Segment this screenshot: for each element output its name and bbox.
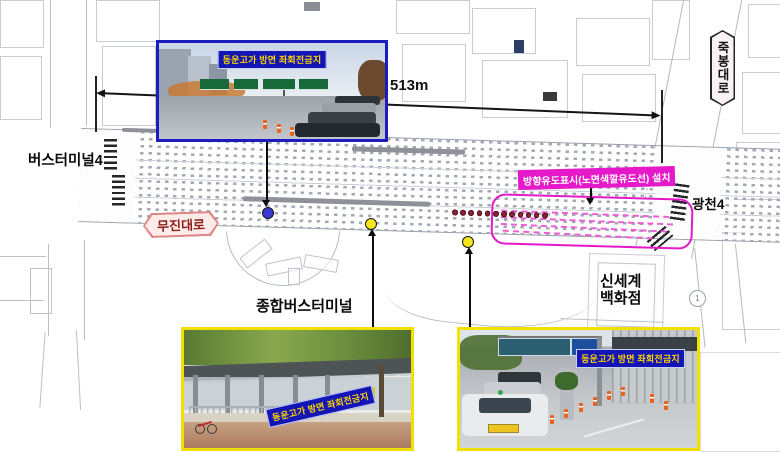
map-detail (543, 92, 557, 101)
map-detail (39, 332, 45, 408)
map-detail (742, 72, 780, 134)
map-detail (748, 4, 780, 58)
label-shinsegae-dept: 신세계 백화점 (600, 274, 641, 307)
map-detail (472, 8, 536, 54)
map-detail (0, 256, 46, 257)
callout-jukbong-daero: 죽봉대로 (710, 30, 735, 106)
traffic-cone (621, 387, 625, 396)
traffic-cone (263, 120, 267, 129)
callout-mujin-daero-label: 무진대로 (145, 213, 218, 236)
planter (555, 372, 579, 390)
traffic-cone (579, 403, 583, 412)
yellow-marker-1 (365, 218, 377, 230)
map-detail (86, 0, 87, 126)
map-detail (50, 0, 51, 128)
blue-marker (262, 207, 274, 219)
dimension-label: 513m (390, 77, 428, 94)
parked-car (295, 123, 381, 137)
road-sign (498, 338, 571, 355)
map-detail (514, 40, 524, 53)
map-detail (384, 231, 602, 337)
map-point-1-badge: 1 (689, 290, 706, 307)
inset-photo-bottom-left: 동운고가 방면 좌회전금지 (181, 327, 414, 451)
arrowhead-up-icon (368, 229, 376, 236)
traffic-plan-map: 513m 버스터미널4 광천4 종합버스터미널 신세계 백화점 1 무진대로 죽… (0, 0, 780, 453)
map-detail (396, 0, 470, 34)
license-plate (488, 424, 518, 433)
arrowhead-up-icon (465, 247, 473, 254)
arrow-bottomright-photo-to-yellow-marker (469, 254, 472, 327)
label-bus-terminal-4: 버스터미널4 (28, 149, 103, 170)
arrowhead-left-icon (96, 89, 105, 97)
yellow-marker-2 (462, 236, 474, 248)
traffic-cone (593, 397, 597, 406)
inset-photo-bottom-right: 동운고가 방면 좌회전금지 (457, 327, 700, 451)
callout-jukbong-daero-label: 죽봉대로 (712, 32, 734, 105)
no-left-turn-caption: 동운고가 방면 좌회전금지 (576, 349, 685, 368)
road-sign (263, 79, 295, 91)
road-sign (299, 79, 328, 91)
guidance-label: 방향유도표시(노면색깔유도선) 설치 (518, 166, 676, 190)
photo-detail (479, 398, 531, 412)
map-detail (700, 352, 780, 452)
no-left-turn-caption: 동운고가 방면 좌회전금지 (218, 50, 327, 69)
dimension-extension-line (95, 76, 97, 132)
map-detail (48, 244, 49, 336)
label-gwangcheon-4: 광천4 (692, 193, 724, 213)
guidance-dash-line (503, 230, 653, 240)
dimension-extension-line (661, 90, 663, 163)
callout-mujin-daero: 무진대로 (143, 211, 220, 239)
traffic-cone (650, 394, 654, 403)
traffic-cone (550, 415, 554, 424)
map-detail (0, 56, 42, 120)
arrow-bottomleft-photo-to-yellow-marker (372, 236, 375, 327)
inset-photo-top: 동운고가 방면 좌회전금지 (156, 40, 388, 142)
arrowhead-down-icon (586, 198, 594, 205)
traffic-cone (290, 127, 294, 136)
arrowhead-right-icon (651, 111, 660, 119)
traffic-cone (564, 409, 568, 418)
traffic-cone (277, 124, 281, 133)
map-detail (304, 2, 320, 11)
map-detail (288, 268, 300, 285)
photo-detail (184, 422, 411, 448)
map-detail (576, 18, 650, 66)
photo-detail (379, 365, 384, 417)
label-general-bus-terminal: 종합버스터미널 (256, 295, 353, 316)
road-sign (200, 79, 229, 91)
road-sign (234, 79, 259, 91)
photo-detail (597, 337, 602, 405)
traffic-cone (664, 401, 668, 410)
map-detail (96, 0, 160, 42)
map-detail (0, 0, 44, 48)
map-detail (84, 240, 85, 340)
arrow-top-photo-to-blue-marker (266, 142, 269, 202)
arrowhead-down-icon (262, 200, 270, 207)
crosswalk (112, 175, 125, 208)
photo-detail (358, 60, 388, 100)
traffic-cone (607, 391, 611, 400)
map-detail (0, 300, 44, 301)
map-detail (76, 330, 81, 410)
map-detail (102, 46, 156, 126)
crosswalk (104, 139, 117, 172)
